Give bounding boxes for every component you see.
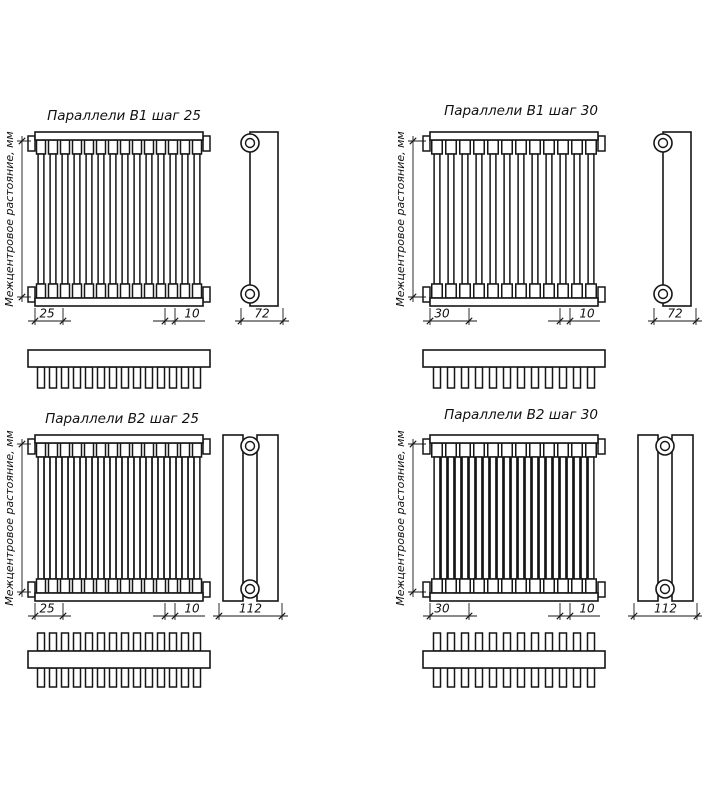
fitting-hole-icon: [246, 290, 255, 299]
axis-label: Межцентровое растояние, мм: [394, 430, 407, 605]
tube-width-label: 10: [579, 307, 595, 321]
depth-label: 72: [667, 307, 682, 321]
pitch-dimension: 25: [28, 307, 71, 326]
pitch-label: 25: [39, 307, 54, 321]
fitting-hole-icon: [659, 139, 668, 148]
tube-width-dimension: 10: [548, 602, 600, 621]
front-view: [423, 435, 605, 601]
tube-width-label: 10: [184, 602, 200, 616]
depth-dimension: 72: [235, 307, 289, 326]
fitting-hole-icon: [246, 139, 255, 148]
top-view: [423, 350, 605, 388]
fitting-hole-icon: [659, 290, 668, 299]
front-view: [28, 132, 210, 306]
depth-label: 72: [254, 307, 269, 321]
fitting-hole-icon: [246, 442, 255, 451]
fitting-hole-icon: [661, 585, 670, 594]
fitting-hole-icon: [661, 442, 670, 451]
drawing-title: Параллели В2 шаг 25: [45, 411, 199, 427]
side-view: [223, 435, 278, 601]
tube-width-dimension: 10: [153, 307, 205, 326]
pitch-label: 25: [39, 602, 54, 616]
axis-label: Межцентровое растояние, мм: [3, 131, 16, 306]
center-distance-dimension: Межцентровое растояние, мм: [394, 131, 426, 306]
drawing-title: Параллели В2 шаг 30: [444, 407, 598, 423]
depth-dimension: 112: [213, 602, 288, 621]
tube-width-label: 10: [579, 602, 595, 616]
radiator-drawing-4: Параллели В2 шаг 30Межцентровое растояни…: [394, 407, 702, 687]
pitch-dimension: 30: [423, 602, 477, 621]
top-view: [423, 633, 605, 687]
drawing-sheet: Параллели В1 шаг 25Межцентровое растояни…: [0, 0, 702, 792]
radiator-drawing-1: Параллели В1 шаг 25Межцентровое растояни…: [3, 108, 289, 388]
center-distance-dimension: Межцентровое растояние, мм: [3, 430, 31, 605]
pitch-dimension: 25: [28, 602, 71, 621]
depth-dimension: 112: [628, 602, 702, 621]
drawing-title: Параллели В1 шаг 30: [444, 103, 598, 119]
tube-width-label: 10: [184, 307, 200, 321]
pitch-dimension: 30: [423, 307, 477, 326]
fitting-hole-icon: [246, 585, 255, 594]
axis-label: Межцентровое растояние, мм: [394, 131, 407, 306]
side-view: [638, 435, 693, 601]
radiator-technical-drawing: Параллели В1 шаг 25Межцентровое растояни…: [0, 0, 702, 792]
depth-label: 112: [239, 602, 262, 616]
top-view: [28, 633, 210, 687]
pitch-label: 30: [434, 307, 450, 321]
top-view: [28, 350, 210, 388]
side-view: [654, 132, 691, 306]
depth-dimension: 72: [648, 307, 702, 326]
tube-width-dimension: 10: [153, 602, 205, 621]
side-view: [241, 132, 278, 306]
axis-label: Межцентровое растояние, мм: [3, 430, 16, 605]
tube-width-dimension: 10: [548, 307, 600, 326]
center-distance-dimension: Межцентровое растояние, мм: [3, 131, 31, 306]
depth-label: 112: [654, 602, 677, 616]
pitch-label: 30: [434, 602, 450, 616]
drawing-title: Параллели В1 шаг 25: [47, 108, 201, 124]
center-distance-dimension: Межцентровое растояние, мм: [394, 430, 426, 605]
front-view: [28, 435, 210, 601]
radiator-drawing-2: Параллели В1 шаг 30Межцентровое растояни…: [394, 103, 702, 388]
front-view: [423, 132, 605, 306]
radiator-drawing-3: Параллели В2 шаг 25Межцентровое растояни…: [3, 411, 288, 687]
